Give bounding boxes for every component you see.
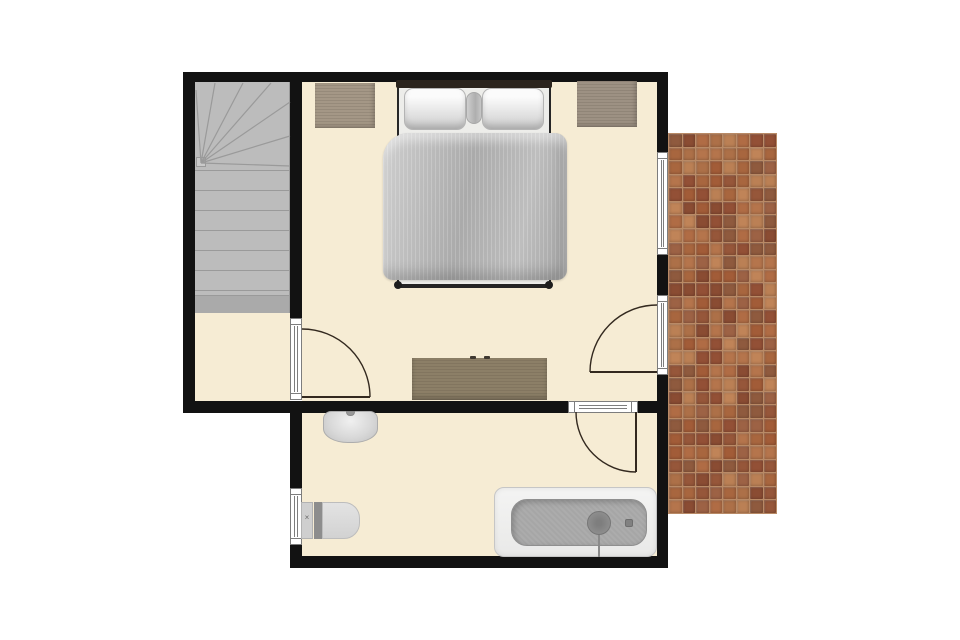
- terrace-tile: [683, 297, 696, 310]
- terrace-tile: [669, 310, 682, 323]
- terrace-tile: [683, 405, 696, 418]
- toilet-flush-mark: ×: [302, 513, 312, 523]
- stair-tread: [195, 270, 290, 271]
- toilet-bowl: [322, 502, 360, 539]
- terrace-tile: [669, 500, 682, 513]
- terrace-tile: [669, 351, 682, 364]
- terrace-tile: [723, 351, 736, 364]
- terrace-tile: [750, 256, 763, 269]
- terrace-tile: [737, 310, 750, 323]
- terrace-tile: [696, 297, 709, 310]
- bathroom-door-threshold-glazing-line: [579, 405, 627, 406]
- terrace-tile: [750, 392, 763, 405]
- terrace-tile: [750, 270, 763, 283]
- terrace-tile: [683, 134, 696, 147]
- terrace-tile: [764, 188, 777, 201]
- stair-door-threshold-glazing-line: [294, 326, 295, 392]
- terrace-tile: [710, 175, 723, 188]
- terrace-door-threshold-cap-bottom: [658, 368, 667, 374]
- terrace-tile: [750, 297, 763, 310]
- nightstand-left: [315, 83, 375, 128]
- terrace-tile: [683, 256, 696, 269]
- terrace-tile: [723, 297, 736, 310]
- terrace-door-threshold-glazing-line: [663, 303, 664, 367]
- terrace-tile: [669, 460, 682, 473]
- terrace-tile: [737, 161, 750, 174]
- terrace-tile: [683, 487, 696, 500]
- terrace-tile: [696, 243, 709, 256]
- terrace-tile: [723, 446, 736, 459]
- terrace-tile: [683, 148, 696, 161]
- terrace-tile: [683, 419, 696, 432]
- terrace-tile: [737, 487, 750, 500]
- terrace-tile: [764, 433, 777, 446]
- terrace-tile: [723, 161, 736, 174]
- terrace-tile: [669, 270, 682, 283]
- terrace-tile: [696, 433, 709, 446]
- terrace-tile: [750, 229, 763, 242]
- terrace-tile: [696, 175, 709, 188]
- terrace-tile: [669, 134, 682, 147]
- terrace-tile: [737, 433, 750, 446]
- terrace-tile: [683, 215, 696, 228]
- terrace-tile: [710, 202, 723, 215]
- terrace-tile: [710, 365, 723, 378]
- bathroom-window-glazing-line: [294, 496, 295, 537]
- bed-footbar: [398, 284, 550, 288]
- terrace-tile: [750, 405, 763, 418]
- terrace-tile: [696, 473, 709, 486]
- terrace-tile: [710, 419, 723, 432]
- terrace-tile: [710, 338, 723, 351]
- terrace-tile: [723, 283, 736, 296]
- terrace-tile: [737, 378, 750, 391]
- terrace-tile: [764, 243, 777, 256]
- wall-bath-bottom: [290, 556, 668, 568]
- terrace-tile: [696, 134, 709, 147]
- terrace-tile: [764, 365, 777, 378]
- terrace-tile: [764, 405, 777, 418]
- terrace-tile: [750, 351, 763, 364]
- terrace-tile: [710, 446, 723, 459]
- stair-tread: [195, 170, 290, 171]
- terrace-tile: [750, 487, 763, 500]
- terrace-tile: [683, 351, 696, 364]
- terrace-tile: [750, 338, 763, 351]
- terrace-tile: [683, 310, 696, 323]
- bed-headboard: [396, 80, 552, 88]
- terrace-tile: [723, 378, 736, 391]
- terrace-tile: [669, 256, 682, 269]
- terrace-tile: [669, 419, 682, 432]
- wall-bath-left-upper: [290, 413, 302, 488]
- terrace-tile: [669, 446, 682, 459]
- terrace-tile: [669, 365, 682, 378]
- terrace-tile: [669, 161, 682, 174]
- terrace-tile: [683, 188, 696, 201]
- terrace-tile: [737, 202, 750, 215]
- terrace-tile: [737, 473, 750, 486]
- terrace-tile: [669, 229, 682, 242]
- terrace-tile: [723, 473, 736, 486]
- terrace-tile: [710, 256, 723, 269]
- terrace-tile: [737, 446, 750, 459]
- terrace-tile: [723, 243, 736, 256]
- terrace-tile: [764, 134, 777, 147]
- terrace-tile: [764, 310, 777, 323]
- terrace-tile: [683, 378, 696, 391]
- terrace-tile: [750, 243, 763, 256]
- terrace-tile: [683, 500, 696, 513]
- terrace-tile: [696, 215, 709, 228]
- terrace-tile: [764, 175, 777, 188]
- bathroom-window-cap-bottom: [291, 538, 301, 544]
- bed-corner-knob: [545, 281, 553, 289]
- terrace-tile: [723, 188, 736, 201]
- terrace-tile: [723, 405, 736, 418]
- terrace-tile: [764, 270, 777, 283]
- terrace-tile: [683, 243, 696, 256]
- terrace-tile: [710, 473, 723, 486]
- dresser-knob: [470, 356, 476, 359]
- terrace-tile: [764, 446, 777, 459]
- dresser-knob: [484, 356, 490, 359]
- terrace-tile: [750, 202, 763, 215]
- wall-right-lower: [657, 375, 668, 568]
- terrace-tile: [764, 460, 777, 473]
- terrace-tile: [696, 270, 709, 283]
- bathroom-window-cap-top: [291, 489, 301, 495]
- bathtub-overflow-pipe: [598, 534, 600, 557]
- terrace-tile: [696, 148, 709, 161]
- terrace-tile: [737, 229, 750, 242]
- terrace-tile: [750, 419, 763, 432]
- terrace-tile: [696, 500, 709, 513]
- terrace-tile: [669, 378, 682, 391]
- terrace-tile: [683, 365, 696, 378]
- terrace-tile: [723, 338, 736, 351]
- terrace-tile: [710, 148, 723, 161]
- terrace-tile: [696, 365, 709, 378]
- terrace-tile: [737, 134, 750, 147]
- terrace-tile: [710, 229, 723, 242]
- terrace-tile: [696, 460, 709, 473]
- terrace-tile: [696, 283, 709, 296]
- terrace-tile: [723, 365, 736, 378]
- terrace-tile: [669, 148, 682, 161]
- terrace-tile: [710, 392, 723, 405]
- terrace-tile: [750, 215, 763, 228]
- terrace-tile: [750, 324, 763, 337]
- terrace-tile: [683, 175, 696, 188]
- terrace-tile: [764, 500, 777, 513]
- staircase: [195, 82, 290, 313]
- terrace-tile: [696, 487, 709, 500]
- terrace-tile: [683, 338, 696, 351]
- terrace-tile: [696, 405, 709, 418]
- terrace-tile: [696, 446, 709, 459]
- terrace-tile: [723, 433, 736, 446]
- terrace-tile: [696, 310, 709, 323]
- terrace-tile: [710, 310, 723, 323]
- terrace-tile: [723, 392, 736, 405]
- terrace-tile: [710, 188, 723, 201]
- terrace-tile: [723, 148, 736, 161]
- bedroom-window-cap-bottom: [658, 248, 667, 254]
- terrace-tile: [696, 202, 709, 215]
- terrace-tile: [683, 161, 696, 174]
- terrace-tile: [750, 365, 763, 378]
- wall-right-mid: [657, 255, 668, 295]
- terrace-tile: [696, 256, 709, 269]
- bedroom-window: [657, 152, 668, 255]
- terrace-tile: [737, 351, 750, 364]
- floor-plan: ×: [0, 0, 960, 640]
- terrace-tile: [669, 215, 682, 228]
- terrace-tile: [750, 175, 763, 188]
- terrace-door-threshold-cap-top: [658, 296, 667, 302]
- stair-newel-hub: [196, 157, 206, 167]
- terrace-tile: [723, 500, 736, 513]
- terrace-tile: [669, 324, 682, 337]
- terrace-tile: [696, 378, 709, 391]
- terrace-tile: [723, 419, 736, 432]
- terrace-tile: [737, 392, 750, 405]
- dresser: [412, 358, 547, 400]
- terrace-tile: [750, 134, 763, 147]
- bathroom-door-threshold-glazing-line: [579, 408, 627, 409]
- bathroom-door-threshold-cap-left: [569, 402, 575, 412]
- terrace-tile: [764, 215, 777, 228]
- terrace-tile: [764, 338, 777, 351]
- terrace-tile: [750, 500, 763, 513]
- terrace-tile: [710, 405, 723, 418]
- terrace-tile: [683, 433, 696, 446]
- terrace-tile: [710, 270, 723, 283]
- terrace-tile: [710, 487, 723, 500]
- terrace-tile: [683, 446, 696, 459]
- terrace-door-threshold: [657, 295, 668, 375]
- terrace-tile: [723, 487, 736, 500]
- terrace-tile: [723, 229, 736, 242]
- stair-tread: [195, 190, 290, 191]
- terrace-tile: [737, 324, 750, 337]
- terrace-tile: [764, 351, 777, 364]
- terrace-tile: [683, 283, 696, 296]
- terrace-tile: [723, 134, 736, 147]
- nightstand-right: [577, 81, 637, 127]
- terrace-tile: [683, 324, 696, 337]
- terrace-tile: [737, 419, 750, 432]
- terrace-tile: [683, 460, 696, 473]
- stair-tread: [195, 290, 290, 291]
- terrace-tile: [723, 460, 736, 473]
- terrace-tile: [669, 338, 682, 351]
- bathroom-door-threshold: [568, 401, 638, 413]
- terrace-tile: [737, 188, 750, 201]
- terrace-tile: [696, 392, 709, 405]
- terrace-tile: [683, 473, 696, 486]
- bathtub-drain: [587, 511, 611, 535]
- stair-door-threshold: [290, 318, 302, 400]
- terrace-tile: [696, 229, 709, 242]
- wall-left: [183, 82, 195, 413]
- terrace-tile: [764, 229, 777, 242]
- terrace-tile: [764, 419, 777, 432]
- terrace-tile: [723, 202, 736, 215]
- terrace-tile: [737, 283, 750, 296]
- terrace-tile: [710, 433, 723, 446]
- stair-tread: [195, 250, 290, 251]
- wall-mid-horizontal-left: [183, 401, 568, 413]
- terrace-tile: [710, 500, 723, 513]
- terrace-tile: [737, 500, 750, 513]
- stair-tread: [195, 230, 290, 231]
- terrace-tile: [669, 243, 682, 256]
- terrace-tile: [669, 405, 682, 418]
- terrace-tile: [683, 392, 696, 405]
- terrace-tile: [764, 487, 777, 500]
- bathtub-faucet: [625, 519, 633, 527]
- terrace-tile: [723, 215, 736, 228]
- terrace-tile: [750, 283, 763, 296]
- terrace-tile: [764, 283, 777, 296]
- terrace-tile: [750, 473, 763, 486]
- terrace-tile: [764, 161, 777, 174]
- terrace-tile: [723, 324, 736, 337]
- bathroom-door-threshold-cap-right: [631, 402, 637, 412]
- terrace-tile: [737, 256, 750, 269]
- terrace-tile: [764, 324, 777, 337]
- terrace-tile: [750, 188, 763, 201]
- terrace-tile: [737, 243, 750, 256]
- terrace-tile: [723, 256, 736, 269]
- terrace-tile: [750, 378, 763, 391]
- bedroom-window-cap-top: [658, 153, 667, 159]
- terrace-tile: [764, 148, 777, 161]
- bed-corner-knob: [394, 281, 402, 289]
- stair-door-threshold-cap-bottom: [291, 393, 301, 399]
- terrace-door-threshold-glazing-line: [661, 303, 662, 367]
- pillow-right: [482, 88, 544, 130]
- bedroom-window-glazing-line: [663, 160, 664, 247]
- terrace-tile: [764, 473, 777, 486]
- stair-last-tread: [195, 295, 290, 313]
- terrace-tile: [669, 175, 682, 188]
- terrace-tile: [669, 473, 682, 486]
- terrace-tile: [710, 378, 723, 391]
- toilet-tank-lid: [314, 502, 322, 539]
- terrace-tile: [737, 460, 750, 473]
- bedroom-window-glazing-line: [661, 160, 662, 247]
- terrace-tile: [669, 297, 682, 310]
- terrace-tile: [696, 351, 709, 364]
- terrace-tile: [737, 215, 750, 228]
- terrace-tile: [696, 338, 709, 351]
- pillow-left: [404, 88, 466, 130]
- terrace-tile: [669, 202, 682, 215]
- terrace-tile: [764, 202, 777, 215]
- bathroom-window-glazing-line: [297, 496, 298, 537]
- terrace-tile: [710, 161, 723, 174]
- stair-tread: [195, 210, 290, 211]
- terrace-tile: [750, 161, 763, 174]
- terrace-tile: [710, 351, 723, 364]
- terrace-tile: [750, 460, 763, 473]
- terrace-tile: [710, 460, 723, 473]
- stair-door-threshold-cap-top: [291, 319, 301, 325]
- terrace-tile: [723, 270, 736, 283]
- bed-bolster: [466, 92, 482, 124]
- terrace-tile: [669, 487, 682, 500]
- terrace-tile: [683, 202, 696, 215]
- terrace-tile: [669, 392, 682, 405]
- terrace-tile: [764, 392, 777, 405]
- bed-duvet: [383, 133, 567, 280]
- terrace-tile: [723, 175, 736, 188]
- terrace-tile: [737, 297, 750, 310]
- terrace-tile: [750, 433, 763, 446]
- terrace: [668, 133, 777, 514]
- terrace-tile: [750, 446, 763, 459]
- terrace-tile: [737, 405, 750, 418]
- terrace-tile: [737, 338, 750, 351]
- wall-stair-divider: [290, 82, 302, 318]
- stair-door-threshold-glazing-line: [297, 326, 298, 392]
- terrace-tile: [764, 378, 777, 391]
- terrace-tile: [750, 310, 763, 323]
- terrace-tile: [669, 283, 682, 296]
- terrace-tile: [750, 148, 763, 161]
- terrace-tile: [710, 215, 723, 228]
- terrace-tile: [764, 256, 777, 269]
- terrace-tile: [710, 324, 723, 337]
- terrace-tile: [710, 297, 723, 310]
- wall-right-upper: [657, 82, 668, 152]
- terrace-tile: [696, 188, 709, 201]
- terrace-tile: [669, 188, 682, 201]
- terrace-tile: [683, 270, 696, 283]
- terrace-tile: [696, 324, 709, 337]
- terrace-tile: [696, 161, 709, 174]
- terrace-tile: [683, 229, 696, 242]
- terrace-tile: [710, 283, 723, 296]
- terrace-tile: [737, 148, 750, 161]
- terrace-tile: [737, 175, 750, 188]
- terrace-tile: [723, 310, 736, 323]
- terrace-tile: [710, 134, 723, 147]
- terrace-tile: [764, 297, 777, 310]
- terrace-tile: [696, 419, 709, 432]
- terrace-tile: [669, 433, 682, 446]
- terrace-tile: [710, 243, 723, 256]
- terrace-tile: [737, 365, 750, 378]
- terrace-tile: [737, 270, 750, 283]
